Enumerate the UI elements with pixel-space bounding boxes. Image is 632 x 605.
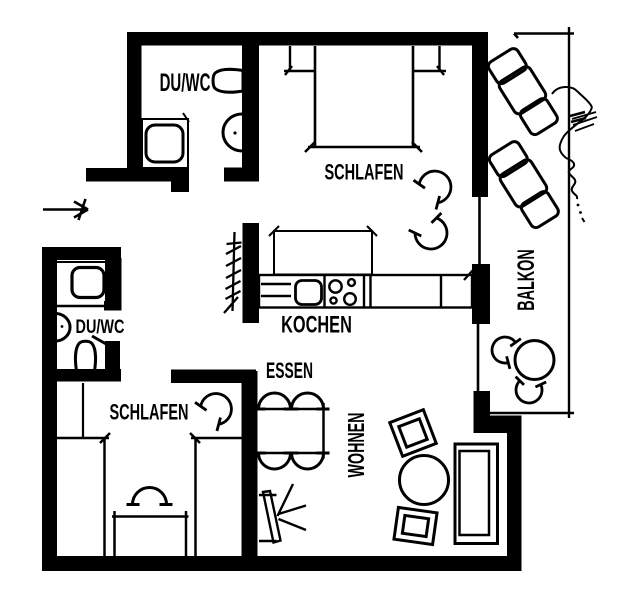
svg-text:SCHLAFEN: SCHLAFEN [110,400,189,425]
svg-text:WOHNEN: WOHNEN [345,413,370,478]
svg-text:KOCHEN: KOCHEN [281,312,352,339]
svg-text:ESSEN: ESSEN [266,357,313,382]
svg-text:BALKON: BALKON [513,249,540,311]
svg-text:DU/WC: DU/WC [160,69,211,97]
svg-text:DU/WC: DU/WC [76,316,125,337]
svg-text:SCHLAFEN: SCHLAFEN [325,160,404,185]
